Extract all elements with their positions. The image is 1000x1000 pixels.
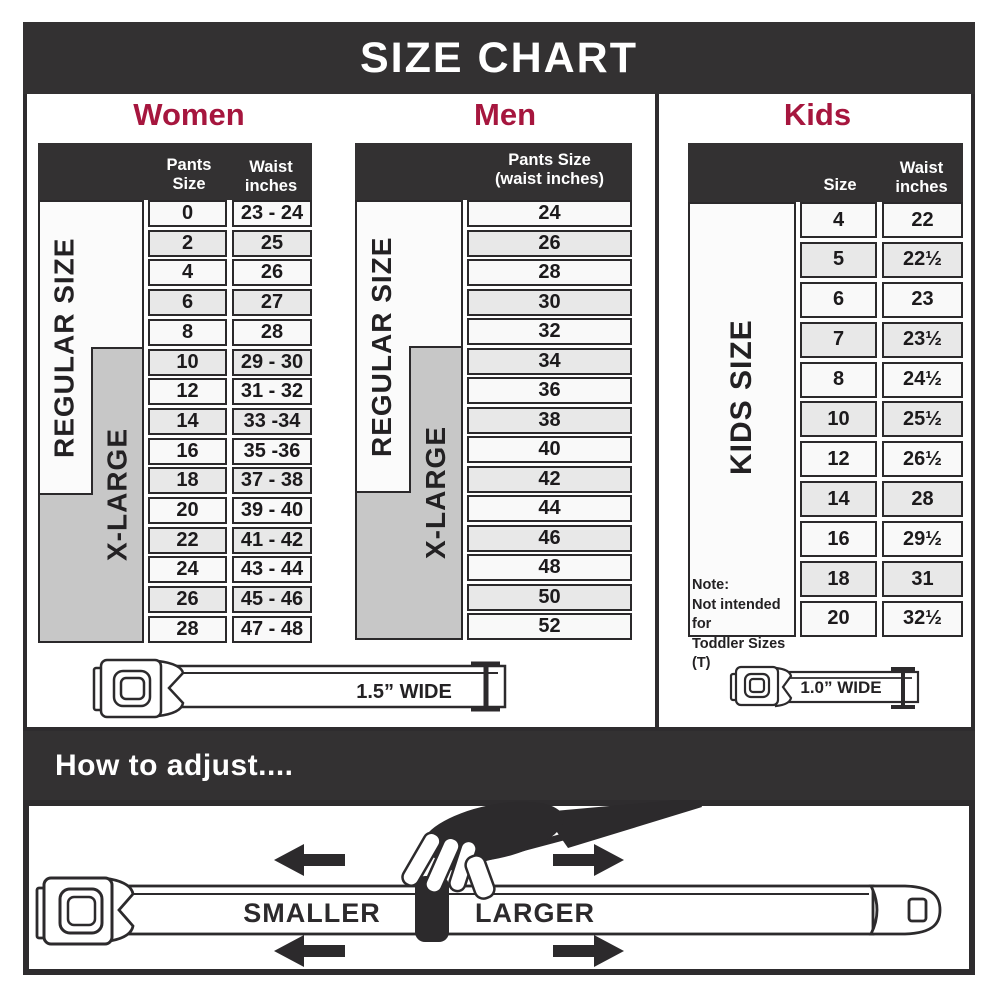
women-waist-cell: 37 - 38 (232, 467, 312, 494)
kids-note-title: Note: (692, 576, 794, 596)
men-table-row: 32 (467, 318, 632, 345)
arrow-left-lower-icon (274, 935, 345, 967)
men-table-row: 44 (467, 495, 632, 522)
arrow-left-upper-icon (274, 844, 345, 876)
women-pants-size-cell: 14 (148, 408, 227, 435)
men-table-row: 28 (467, 259, 632, 286)
arrow-right-lower-icon (553, 935, 624, 967)
women-table-row: 18 37 - 38 (148, 467, 312, 494)
women-table-row: 4 26 (148, 259, 312, 286)
kids-waist-cell: 25½ (882, 401, 963, 437)
men-pants-size-cell: 30 (467, 289, 632, 316)
women-waist-cell: 25 (232, 230, 312, 257)
men-table-header: Pants Size (waist inches) (355, 143, 632, 200)
kids-col-waist-inches: Waist inches (880, 159, 963, 197)
women-pants-size-cell: 4 (148, 259, 227, 286)
men-pants-size-cell: 50 (467, 584, 632, 611)
women-waist-cell: 33 -34 (232, 408, 312, 435)
women-xlarge-label: X-LARGE (91, 347, 144, 643)
kids-size-cell: 8 (800, 362, 877, 398)
kids-size-cell: 16 (800, 521, 877, 557)
women-table-row: 10 29 - 30 (148, 349, 312, 376)
kids-size-cell: 12 (800, 441, 877, 477)
women-table-row: 26 45 - 46 (148, 586, 312, 613)
kids-waist-cell: 29½ (882, 521, 963, 557)
men-pants-size-cell: 26 (467, 230, 632, 257)
women-col-waist-inches: Waist inches (230, 158, 312, 196)
kids-table-row: 4 22 (800, 202, 963, 238)
page-title: SIZE CHART (360, 34, 638, 83)
women-pants-size-cell: 12 (148, 378, 227, 405)
women-col-pants-size: Pants Size (148, 156, 230, 194)
women-table-row: 24 43 - 44 (148, 556, 312, 583)
women-waist-cell: 45 - 46 (232, 586, 312, 613)
men-table-row: 50 (467, 584, 632, 611)
women-waist-cell: 27 (232, 289, 312, 316)
women-pants-size-cell: 2 (148, 230, 227, 257)
men-pants-size-cell: 42 (467, 466, 632, 493)
kids-waist-cell: 26½ (882, 441, 963, 477)
kids-belt-width-label: 1.0” WIDE (800, 678, 881, 697)
kids-table-row: 7 23½ (800, 322, 963, 358)
men-table-row: 40 (467, 436, 632, 463)
kids-waist-cell: 31 (882, 561, 963, 597)
kids-table-row: 12 26½ (800, 441, 963, 477)
kids-table-row: 10 25½ (800, 401, 963, 437)
adjust-buckle-button (68, 897, 95, 925)
kids-size-label: KIDS SIZE (688, 202, 796, 592)
men-pants-size-cell: 44 (467, 495, 632, 522)
women-table-header: Pants Size Waist inches (38, 143, 312, 200)
kids-table-row: 8 24½ (800, 362, 963, 398)
women-pants-size-cell: 10 (148, 349, 227, 376)
kids-table-row: 5 22½ (800, 242, 963, 278)
kids-waist-cell: 32½ (882, 601, 963, 637)
men-table-row: 38 (467, 407, 632, 434)
men-table-row: 42 (467, 466, 632, 493)
women-pants-size-cell: 6 (148, 289, 227, 316)
women-waist-cell: 47 - 48 (232, 616, 312, 643)
kids-table-header: Size Waist inches (688, 143, 963, 202)
men-table-row: 34 (467, 348, 632, 375)
men-table-row: 36 (467, 377, 632, 404)
women-waist-cell: 39 - 40 (232, 497, 312, 524)
women-pants-size-cell: 8 (148, 319, 227, 346)
kids-table-row: 16 29½ (800, 521, 963, 557)
kids-buckle-button (750, 679, 764, 692)
kids-waist-cell: 23 (882, 282, 963, 318)
women-waist-cell: 41 - 42 (232, 527, 312, 554)
women-pants-size-cell: 28 (148, 616, 227, 643)
women-waist-cell: 35 -36 (232, 438, 312, 465)
men-pants-size-cell: 46 (467, 525, 632, 552)
women-pants-size-cell: 16 (148, 438, 227, 465)
adult-buckle-button (121, 678, 144, 699)
kids-table-row: 18 31 (800, 561, 963, 597)
men-table-row: 46 (467, 525, 632, 552)
men-kids-divider (655, 94, 659, 731)
how-to-adjust-heading: How to adjust.... (55, 749, 294, 783)
belt-width-illustrations: 1.5” WIDE 1.0” WIDE (30, 650, 970, 730)
men-table-row: 30 (467, 289, 632, 316)
women-size-range-labels: REGULAR SIZE X-LARGE (38, 200, 148, 643)
men-table-row: 24 (467, 200, 632, 227)
hand-forearm (543, 800, 702, 848)
kids-waist-cell: 24½ (882, 362, 963, 398)
women-waist-cell: 23 - 24 (232, 200, 312, 227)
women-table-row: 28 47 - 48 (148, 616, 312, 643)
women-table-row: 8 28 (148, 319, 312, 346)
kids-size-cell: 20 (800, 601, 877, 637)
kids-note-line2: Toddler Sizes (T) (692, 635, 794, 674)
arrow-right-upper-icon (553, 844, 624, 876)
women-waist-cell: 26 (232, 259, 312, 286)
kids-section-heading: Kids (660, 97, 975, 133)
how-to-adjust-banner: How to adjust.... (23, 731, 975, 800)
women-pants-size-cell: 0 (148, 200, 227, 227)
kids-waist-cell: 28 (882, 481, 963, 517)
kids-size-cell: 5 (800, 242, 877, 278)
women-waist-cell: 31 - 32 (232, 378, 312, 405)
men-pants-size-cell: 48 (467, 554, 632, 581)
adjust-belt-tip-hole (909, 899, 926, 921)
adjust-belt-tip (871, 886, 940, 934)
men-table-row: 48 (467, 554, 632, 581)
women-table-row: 2 25 (148, 230, 312, 257)
women-table-row: 6 27 (148, 289, 312, 316)
larger-label: LARGER (475, 898, 595, 928)
women-table-row: 14 33 -34 (148, 408, 312, 435)
women-waist-cell: 29 - 30 (232, 349, 312, 376)
kids-size-cell: 18 (800, 561, 877, 597)
men-pants-size-cell: 34 (467, 348, 632, 375)
men-table-rows: 24 26 28 30 32 34 36 (467, 200, 632, 640)
how-to-adjust-illustration: SMALLER LARGER (23, 800, 975, 975)
men-pants-size-cell: 38 (467, 407, 632, 434)
women-table-row: 22 41 - 42 (148, 527, 312, 554)
men-pants-size-cell: 24 (467, 200, 632, 227)
size-chart-infographic: SIZE CHART Women Men Kids Pants Size Wai… (0, 0, 1000, 1000)
women-section-heading: Women (23, 97, 355, 133)
kids-note: Note: Not intended for Toddler Sizes (T) (692, 576, 794, 674)
kids-size-cell: 7 (800, 322, 877, 358)
women-table-rows: 0 23 - 24 2 25 4 26 6 27 8 28 (148, 200, 312, 643)
smaller-label: SMALLER (243, 898, 381, 928)
women-table-row: 0 23 - 24 (148, 200, 312, 227)
kids-size-range-labels: KIDS SIZE Note: Not intended for Toddler… (688, 202, 800, 637)
kids-size-cell: 4 (800, 202, 877, 238)
men-size-range-labels: REGULAR SIZE X-LARGE (355, 200, 467, 640)
women-table-row: 16 35 -36 (148, 438, 312, 465)
kids-waist-cell: 23½ (882, 322, 963, 358)
women-pants-size-cell: 26 (148, 586, 227, 613)
women-pants-size-cell: 20 (148, 497, 227, 524)
men-table-row: 52 (467, 613, 632, 640)
kids-waist-cell: 22½ (882, 242, 963, 278)
kids-size-cell: 6 (800, 282, 877, 318)
men-col-pants-size: Pants Size (waist inches) (467, 151, 632, 189)
men-pants-size-cell: 36 (467, 377, 632, 404)
kids-table-row: 20 32½ (800, 601, 963, 637)
kids-table-row: 14 28 (800, 481, 963, 517)
men-xlarge-label: X-LARGE (409, 346, 463, 640)
kids-table-row: 6 23 (800, 282, 963, 318)
men-pants-size-cell: 28 (467, 259, 632, 286)
women-pants-size-cell: 24 (148, 556, 227, 583)
women-waist-cell: 28 (232, 319, 312, 346)
kids-note-line1: Not intended for (692, 596, 794, 635)
women-table-row: 12 31 - 32 (148, 378, 312, 405)
women-pants-size-cell: 22 (148, 527, 227, 554)
women-waist-cell: 43 - 44 (232, 556, 312, 583)
women-pants-size-cell: 18 (148, 467, 227, 494)
men-table-row: 26 (467, 230, 632, 257)
women-table-row: 20 39 - 40 (148, 497, 312, 524)
adult-belt-width-label: 1.5” WIDE (356, 681, 452, 703)
title-banner: SIZE CHART (23, 22, 975, 94)
men-pants-size-cell: 40 (467, 436, 632, 463)
men-section-heading: Men (355, 97, 655, 133)
men-pants-size-cell: 52 (467, 613, 632, 640)
kids-size-cell: 10 (800, 401, 877, 437)
women-regular-size-label: REGULAR SIZE (38, 200, 91, 495)
men-pants-size-cell: 32 (467, 318, 632, 345)
kids-waist-cell: 22 (882, 202, 963, 238)
kids-col-size: Size (800, 176, 880, 195)
kids-size-cell: 14 (800, 481, 877, 517)
men-regular-size-label: REGULAR SIZE (355, 200, 409, 493)
kids-table-rows: 4 22 5 22½ 6 23 7 23½ 8 24½ (800, 202, 963, 637)
